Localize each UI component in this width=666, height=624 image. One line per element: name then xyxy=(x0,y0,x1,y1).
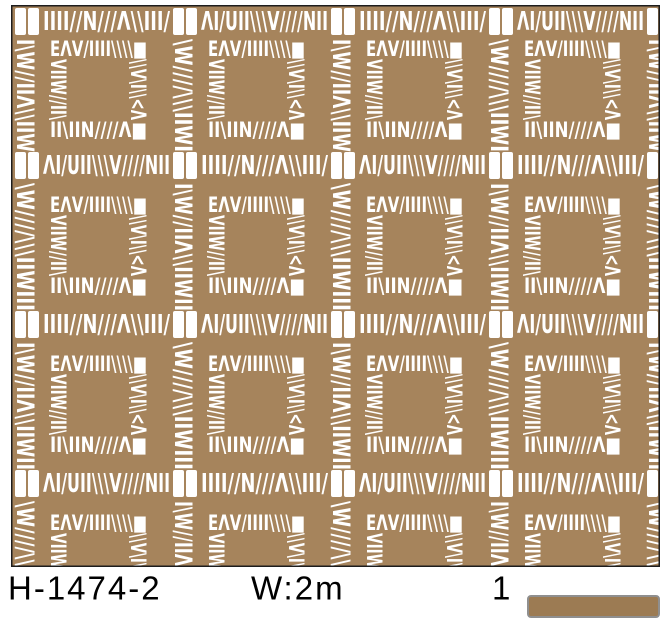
svg-text:VIIW//II\: VIIW//II\ xyxy=(362,533,386,567)
svg-text:\\V\I\\<Λ: \\V\I\\<Λ xyxy=(442,533,466,567)
svg-text:\W////\\\IIWIII: \W////\\\IIWIII xyxy=(11,183,39,311)
svg-text:ΛI/UII\\\V////NII: ΛI/UII\\\V////NII xyxy=(359,151,486,181)
svg-text:EΛV/IIII\\\\■: EΛV/IIII\\\\■ xyxy=(524,352,621,376)
svg-text:I\W//IIΛ\\IIWII: I\W//IIΛ\\IIWII xyxy=(11,342,39,470)
svg-text:VIIW//II\: VIIW//II\ xyxy=(520,215,544,276)
svg-text:II\IIN////Λ■: II\IIN////Λ■ xyxy=(524,118,621,142)
svg-text:EΛV/IIII\\\\■: EΛV/IIII\\\\■ xyxy=(366,193,463,217)
svg-text:ΛI/UII\\\V////NII: ΛI/UII\\\V////NII xyxy=(517,7,644,37)
svg-text:VIIW//II\: VIIW//II\ xyxy=(46,215,70,276)
svg-text:EΛV/IIII\\\\■: EΛV/IIII\\\\■ xyxy=(208,511,305,535)
svg-text:VIIW//II\: VIIW//II\ xyxy=(204,215,228,276)
svg-text:\\V\I\\<Λ: \\V\I\\<Λ xyxy=(284,59,308,120)
svg-text:\W////\\\IIWIII: \W////\\\IIWIII xyxy=(169,342,197,470)
svg-text:II\IIN////Λ■: II\IIN////Λ■ xyxy=(208,118,305,142)
svg-text:EΛV/IIII\\\\■: EΛV/IIII\\\\■ xyxy=(50,37,147,61)
svg-text:\\V\I\\<Λ: \\V\I\\<Λ xyxy=(600,374,624,435)
svg-text:EΛV/IIII\\\\■: EΛV/IIII\\\\■ xyxy=(366,37,463,61)
svg-text:\W////\\\IIWI: \W////\\\IIWI xyxy=(485,39,513,152)
svg-text:EΛV/IIII\\\\■: EΛV/IIII\\\\■ xyxy=(524,193,621,217)
svg-text:EΛV/IIII\\\\■: EΛV/IIII\\\\■ xyxy=(50,511,147,535)
product-info-bar: H-1474-2 W:2m 1 xyxy=(0,567,666,624)
svg-text:\W////\\: \W////\\ xyxy=(11,501,39,566)
svg-text:VIIW//II\: VIIW//II\ xyxy=(362,59,386,120)
svg-text:\\V\I\\<Λ: \\V\I\\<Λ xyxy=(126,533,150,567)
svg-text:I\W//IIΛ\\IIWII: I\W//IIΛ\\IIWII xyxy=(643,342,660,470)
svg-text:EΛV/IIII\\\\■: EΛV/IIII\\\\■ xyxy=(366,511,463,535)
svg-text:\\V\I\\<Λ: \\V\I\\<Λ xyxy=(442,374,466,435)
svg-text:\W////\\: \W////\\ xyxy=(327,501,355,566)
svg-text:EΛV/IIII\\\\■: EΛV/IIII\\\\■ xyxy=(208,193,305,217)
svg-text:I\W//IIΛ\\IIWII: I\W//IIΛ\\IIWII xyxy=(327,342,355,470)
svg-text:II\IIN////Λ■: II\IIN////Λ■ xyxy=(50,274,147,298)
svg-text:ΛI/UII\\\V////NII: ΛI/UII\\\V////NII xyxy=(43,469,170,499)
svg-text:VIIW//II\: VIIW//II\ xyxy=(520,59,544,120)
svg-text:IIII//N///Λ\\III/: IIII//N///Λ\\III/ xyxy=(359,7,486,37)
svg-text:I\W//IIΛ\\IIW: I\W//IIΛ\\IIW xyxy=(643,39,660,152)
svg-text:I\W//IIΛ\\IIW: I\W//IIΛ\\IIW xyxy=(327,39,355,152)
svg-text:VIIW//II\: VIIW//II\ xyxy=(362,374,386,435)
product-code: H-1474-2 xyxy=(8,572,162,605)
svg-text:I\W//IIΛ: I\W//IIΛ xyxy=(169,501,197,566)
svg-text:II\IIN////Λ■: II\IIN////Λ■ xyxy=(50,433,147,457)
quantity-value: 1 xyxy=(492,572,512,605)
svg-text:IIII//N///Λ\\III/: IIII//N///Λ\\III/ xyxy=(517,469,644,499)
svg-text:\\V\I\\<Λ: \\V\I\\<Λ xyxy=(600,59,624,120)
svg-text:EΛV/IIII\\\\■: EΛV/IIII\\\\■ xyxy=(50,352,147,376)
svg-text:VIIW//II\: VIIW//II\ xyxy=(46,533,70,567)
svg-text:\W////\\\IIWIII: \W////\\\IIWIII xyxy=(643,183,660,311)
svg-text:I\W//IIΛ\\IIW: I\W//IIΛ\\IIW xyxy=(11,39,39,152)
svg-text:II\IIN////Λ■: II\IIN////Λ■ xyxy=(208,433,305,457)
svg-text:ΛI/UII\\\V////NII: ΛI/UII\\\V////NII xyxy=(201,7,328,37)
svg-text:VIIW//II\: VIIW//II\ xyxy=(520,533,544,567)
product-sheet: IIII//N///Λ\\III/I\W//IIΛ\\IIWEΛV/IIII\\… xyxy=(0,0,666,624)
svg-text:\W////\\: \W////\\ xyxy=(643,501,660,566)
svg-text:II\IIN////Λ■: II\IIN////Λ■ xyxy=(366,433,463,457)
svg-text:ΛI/UII\\\V////NII: ΛI/UII\\\V////NII xyxy=(43,151,170,181)
svg-text:VIIW//II\: VIIW//II\ xyxy=(46,59,70,120)
svg-text:\\V\I\\<Λ: \\V\I\\<Λ xyxy=(126,374,150,435)
svg-text:I\W//IIΛ\\IIWII: I\W//IIΛ\\IIWII xyxy=(485,183,513,311)
svg-text:VIIW//II\: VIIW//II\ xyxy=(204,374,228,435)
svg-text:\W////\\\IIWI: \W////\\\IIWI xyxy=(169,39,197,152)
svg-text:IIII//N///Λ\\III/: IIII//N///Λ\\III/ xyxy=(43,310,170,340)
svg-text:VIIW//II\: VIIW//II\ xyxy=(46,374,70,435)
svg-text:IIII//N///Λ\\III/: IIII//N///Λ\\III/ xyxy=(201,151,328,181)
svg-text:EΛV/IIII\\\\■: EΛV/IIII\\\\■ xyxy=(524,511,621,535)
svg-text:IIII//N///Λ\\III/: IIII//N///Λ\\III/ xyxy=(359,310,486,340)
svg-text:I\W//IIΛ: I\W//IIΛ xyxy=(485,501,513,566)
svg-text:\\V\I\\<Λ: \\V\I\\<Λ xyxy=(284,374,308,435)
svg-text:\\V\I\\<Λ: \\V\I\\<Λ xyxy=(126,59,150,120)
svg-text:\\V\I\\<Λ: \\V\I\\<Λ xyxy=(600,215,624,276)
svg-text:VIIW//II\: VIIW//II\ xyxy=(520,374,544,435)
svg-text:EΛV/IIII\\\\■: EΛV/IIII\\\\■ xyxy=(208,352,305,376)
svg-text:EΛV/IIII\\\\■: EΛV/IIII\\\\■ xyxy=(208,37,305,61)
svg-text:\\V\I\\<Λ: \\V\I\\<Λ xyxy=(284,533,308,567)
svg-text:\W////\\\IIWIII: \W////\\\IIWIII xyxy=(485,342,513,470)
pattern-frame: IIII//N///Λ\\III/I\W//IIΛ\\IIWEΛV/IIII\\… xyxy=(11,5,660,567)
svg-text:VIIW//II\: VIIW//II\ xyxy=(204,59,228,120)
svg-text:IIII//N///Λ\\III/: IIII//N///Λ\\III/ xyxy=(201,469,328,499)
svg-text:II\IIN////Λ■: II\IIN////Λ■ xyxy=(366,274,463,298)
svg-text:\\V\I\\<Λ: \\V\I\\<Λ xyxy=(442,59,466,120)
svg-text:\\V\I\\<Λ: \\V\I\\<Λ xyxy=(600,533,624,567)
svg-text:\W////\\\IIWIII: \W////\\\IIWIII xyxy=(327,183,355,311)
svg-text:\\V\I\\<Λ: \\V\I\\<Λ xyxy=(284,215,308,276)
svg-text:IIII//N///Λ\\III/: IIII//N///Λ\\III/ xyxy=(43,7,170,37)
svg-text:EΛV/IIII\\\\■: EΛV/IIII\\\\■ xyxy=(524,37,621,61)
svg-text:EΛV/IIII\\\\■: EΛV/IIII\\\\■ xyxy=(50,193,147,217)
svg-text:II\IIN////Λ■: II\IIN////Λ■ xyxy=(524,274,621,298)
product-width: W:2m xyxy=(251,572,345,605)
svg-text:ΛI/UII\\\V////NII: ΛI/UII\\\V////NII xyxy=(201,310,328,340)
svg-text:II\IIN////Λ■: II\IIN////Λ■ xyxy=(366,118,463,142)
svg-text:I\W//IIΛ\\IIWII: I\W//IIΛ\\IIWII xyxy=(169,183,197,311)
svg-text:VIIW//II\: VIIW//II\ xyxy=(204,533,228,567)
svg-text:VIIW//II\: VIIW//II\ xyxy=(362,215,386,276)
svg-text:IIII//N///Λ\\III/: IIII//N///Λ\\III/ xyxy=(517,151,644,181)
color-swatch xyxy=(527,595,660,618)
svg-text:ΛI/UII\\\V////NII: ΛI/UII\\\V////NII xyxy=(517,310,644,340)
fabric-pattern-image: IIII//N///Λ\\III/I\W//IIΛ\\IIWEΛV/IIII\\… xyxy=(11,5,660,567)
svg-text:EΛV/IIII\\\\■: EΛV/IIII\\\\■ xyxy=(366,352,463,376)
svg-text:\\V\I\\<Λ: \\V\I\\<Λ xyxy=(442,215,466,276)
svg-text:ΛI/UII\\\V////NII: ΛI/UII\\\V////NII xyxy=(359,469,486,499)
svg-text:II\IIN////Λ■: II\IIN////Λ■ xyxy=(50,118,147,142)
svg-text:II\IIN////Λ■: II\IIN////Λ■ xyxy=(524,433,621,457)
svg-text:\\V\I\\<Λ: \\V\I\\<Λ xyxy=(126,215,150,276)
svg-text:II\IIN////Λ■: II\IIN////Λ■ xyxy=(208,274,305,298)
